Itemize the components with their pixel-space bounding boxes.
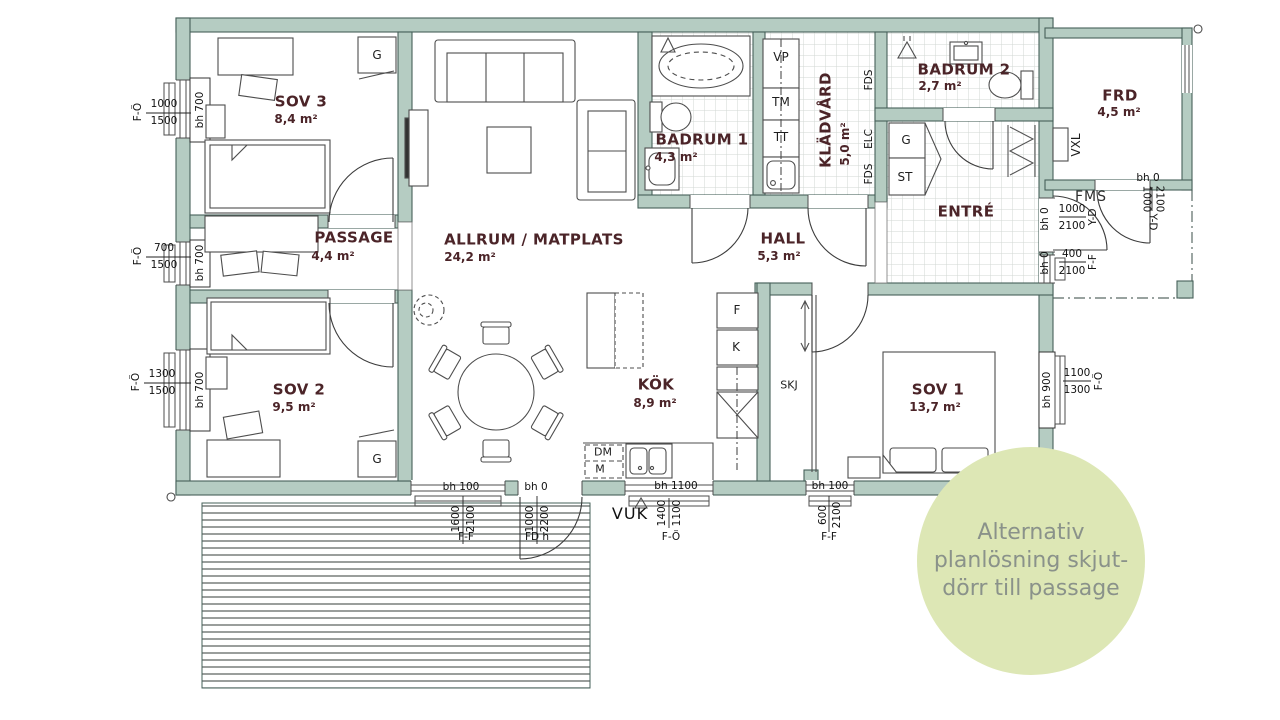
fridge-freezer (717, 293, 758, 470)
dim-bottom2-height: 2200 (540, 506, 551, 533)
callout-bubble: Alternativ planlösning skjut- dörr till … (917, 447, 1145, 675)
room-area-kladvard: 5,0 m² (839, 122, 851, 165)
callout-line-2: planlösning skjut- (934, 547, 1128, 575)
wardrobe-label-sov3: G (372, 49, 381, 61)
fds-label-top: FDS (864, 70, 875, 91)
kitchen-island (587, 293, 643, 368)
fds-label-bottom: FDS (864, 164, 875, 185)
coffee-table (487, 127, 531, 173)
dim-bottom4-width: 600 (818, 505, 829, 525)
dim-left1-height: 1500 (151, 116, 178, 127)
dim-frontdoor-type: Y-D (1088, 208, 1099, 225)
room-area-badrum2: 2,7 m² (918, 80, 961, 92)
dim-right-window-type: F-Ö (1094, 372, 1105, 390)
dim-sidewindow-width: 400 (1062, 249, 1082, 260)
dim-left3-window-type: F-Ö (131, 373, 142, 391)
room-label-entre: ENTRÉ (938, 205, 995, 220)
dim-left1-width: 1000 (151, 99, 178, 110)
loveseat (577, 100, 635, 200)
dim-bottom1-width: 1600 (451, 506, 462, 533)
dim-frontdoor-sill: bh 0 (1040, 207, 1051, 230)
dim-bottom4-window-type: F-F (821, 532, 837, 543)
freezer-label: F (734, 304, 741, 316)
vxl-label: VXL (1070, 133, 1082, 156)
dim-frddoor-height: 2100 (1154, 186, 1165, 213)
room-area-sov1: 13,7 m² (909, 401, 961, 413)
dim-left1-sill: bh 700 (195, 92, 206, 129)
washer-label: TM (772, 96, 790, 108)
room-area-sov3: 8,4 m² (274, 113, 317, 125)
dim-right-height: 1300 (1064, 385, 1091, 396)
room-label-sov2: SOV 2 (273, 383, 325, 398)
callout-line-1: Alternativ (934, 519, 1128, 547)
room-label-frd: FRD (1102, 89, 1137, 104)
vuk-label: VUK (612, 506, 648, 522)
micro-label: M (595, 464, 605, 475)
dim-left2-width: 700 (154, 243, 174, 254)
dryer-label: TT (774, 131, 788, 143)
sov3-bed (205, 140, 330, 213)
dim-frddoor-type: Y-D (1147, 213, 1158, 230)
dim-left2-height: 1500 (151, 260, 178, 271)
dim-frontdoor-height: 2100 (1059, 221, 1086, 232)
callout-line-3: dörr till passage (934, 575, 1128, 603)
dim-bottom2-sill: bh 0 (524, 482, 547, 493)
toilet-1 (650, 102, 691, 132)
sov3-desk (218, 38, 293, 100)
dim-sidewindow-type: F-F (1088, 254, 1099, 270)
room-label-sov1: SOV 1 (912, 383, 964, 398)
room-label-kladvard: KLÄDVÅRD (819, 72, 834, 168)
reference-point (167, 493, 175, 501)
dim-frddoor-width: 1000 (1141, 186, 1152, 213)
dim-bottom1-sill: bh 100 (443, 482, 480, 493)
dim-frddoor-sill: bh 0 (1136, 173, 1159, 184)
dim-left3-height: 1500 (149, 386, 176, 397)
dim-bottom3-window-type: F-Ö (662, 532, 680, 543)
porch-post (1177, 281, 1193, 298)
dim-left3-width: 1300 (149, 369, 176, 380)
sliding-closet-label: SKJ (780, 380, 797, 391)
passage-desk (205, 216, 318, 276)
dim-right-width: 1100 (1064, 368, 1091, 379)
wardrobe-label-entre: G (901, 134, 910, 146)
room-area-kok: 8,9 m² (633, 397, 676, 409)
room-area-sov2: 9,5 m² (272, 401, 315, 413)
fridge-label: K (732, 341, 740, 353)
water-heater-label: VP (773, 51, 788, 63)
sliding-door (801, 295, 816, 472)
dim-right-sill: bh 900 (1042, 372, 1053, 409)
dishwasher-label: DM (594, 447, 612, 458)
room-label-hall: HALL (761, 232, 806, 247)
room-label-badrum2: BADRUM 2 (917, 63, 1010, 78)
dim-frontdoor-width: 1000 (1059, 204, 1086, 215)
sov2-bed (207, 298, 330, 354)
sov3-nightstand (206, 105, 225, 138)
sofa (435, 40, 575, 102)
tv-bench (405, 110, 428, 186)
room-area-allrum: 24,2 m² (444, 251, 496, 263)
room-label-kok: KÖK (638, 378, 675, 393)
dim-sidewindow-sill: bh 0 (1040, 251, 1051, 274)
dim-left1-window-type: F-Ö (133, 103, 144, 121)
room-area-badrum1: 4,3 m² (654, 151, 697, 163)
dim-bottom3-sill: bh 1100 (654, 481, 697, 492)
room-label-badrum1: BADRUM 1 (655, 133, 748, 148)
alt-door-symbol (414, 295, 444, 325)
sov2-nightstand (206, 357, 227, 389)
room-label-allrum: ALLRUM / MATPLATS (444, 233, 624, 248)
dining-table (428, 322, 564, 462)
dim-left2-window-type: F-Ö (133, 247, 144, 265)
room-area-frd: 4,5 m² (1097, 106, 1140, 118)
dim-bottom2-width: 1000 (525, 506, 536, 533)
wardrobe-label-sov2: G (372, 453, 381, 465)
dim-bottom3-width: 1400 (657, 500, 668, 527)
room-label-sov3: SOV 3 (275, 95, 327, 110)
dim-bottom2-door-type: FD h (525, 532, 549, 543)
room-area-passage: 4,4 m² (311, 250, 354, 262)
elc-label: ELC (864, 129, 875, 149)
room-area-hall: 5,3 m² (757, 250, 800, 262)
cleaning-closet-label: ST (898, 171, 913, 183)
bathtub (652, 36, 750, 96)
dim-bottom1-window-type: F-F (458, 532, 474, 543)
sov1-nightstand-left (848, 457, 880, 478)
dim-sidewindow-height: 2100 (1059, 266, 1086, 277)
dim-bottom4-sill: bh 100 (812, 481, 849, 492)
room-label-passage: PASSAGE (314, 231, 393, 246)
sov2-desk (207, 411, 280, 477)
dim-bottom3-height: 1100 (672, 500, 683, 527)
dim-bottom1-height: 2100 (466, 506, 477, 533)
vxl-unit (1053, 128, 1068, 161)
dim-bottom4-height: 2100 (832, 502, 843, 529)
dim-left2-sill: bh 700 (195, 245, 206, 282)
dim-left3-sill: bh 700 (195, 372, 206, 409)
reference-point (1194, 25, 1202, 33)
floor-plan-page: SOV 3 8,4 m² PASSAGE 4,4 m² SOV 2 9,5 m²… (0, 0, 1280, 720)
